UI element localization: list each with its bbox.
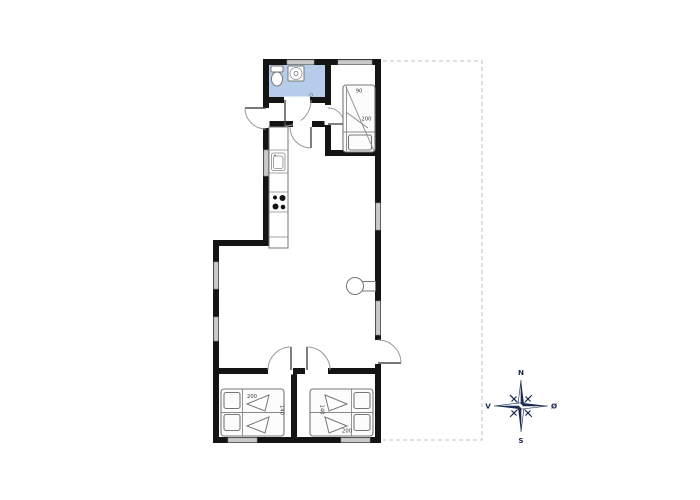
window-bathroom-north: [287, 60, 314, 65]
pillow: [354, 393, 370, 409]
kitchen-fixtures: [269, 127, 288, 248]
top-bedroom-door: [325, 105, 345, 125]
kitchen-counter: [269, 127, 288, 248]
washbasin-drain: [294, 72, 298, 76]
bed-right-bedroom: 140 200: [310, 389, 373, 436]
wall-bedrooms-north-c: [328, 368, 375, 374]
bed-top-bedroom: 90 200: [343, 85, 375, 152]
wood-stove-flue: [363, 282, 376, 292]
window-living-west-b: [214, 317, 219, 341]
bed-width-label: 140: [319, 405, 325, 415]
compass-west-label: V: [485, 402, 491, 411]
left-bedroom-door: [268, 347, 293, 375]
bed-width-label: 140: [279, 405, 285, 415]
wood-stove: [347, 278, 376, 295]
window-right-bedroom-south: [341, 438, 370, 443]
compass-center-dot: [519, 404, 522, 407]
bed-length-label: 200: [362, 117, 372, 123]
compass-east-label: Ø: [551, 402, 557, 411]
window-left-bedroom-south: [228, 438, 257, 443]
right-bedroom-door: [305, 347, 330, 375]
pillow: [354, 415, 370, 431]
wall-bedrooms-north-b: [293, 368, 305, 374]
window-living-west-a: [214, 262, 219, 289]
terrace-door-east: [375, 340, 402, 364]
window-living-east-a: [376, 203, 381, 230]
wall-bedrooms-divider: [291, 374, 297, 437]
compass-north-label: N: [518, 368, 524, 377]
hall-living-door: [290, 121, 312, 149]
bed-length-label: 200: [342, 429, 352, 435]
bed-width-label: 90: [356, 89, 363, 95]
window-living-east-b: [376, 301, 381, 335]
toilet-bowl: [272, 72, 283, 86]
wall-bathroom-bedroom-divider: [325, 65, 331, 105]
toilet-tank: [271, 66, 283, 72]
floorplan-canvas: 90 200 200 140 140 200: [0, 0, 700, 500]
wall-bathroom-south-a: [269, 97, 284, 103]
entrance-door-west: [245, 108, 270, 129]
bed-left-bedroom: 200 140: [221, 389, 285, 436]
wall-east: [375, 59, 381, 443]
pillow: [224, 393, 240, 409]
window-top-bedroom-north: [338, 60, 372, 65]
wall-bedrooms-north-a: [219, 368, 268, 374]
bed-length-label: 200: [247, 394, 257, 400]
wall-step: [213, 240, 269, 246]
pillow: [224, 415, 240, 431]
floorplan-page: 90 200 200 140 140 200: [0, 0, 700, 500]
compass-rose: N S V Ø: [485, 368, 557, 445]
window-kitchen-west: [264, 150, 269, 176]
compass-south-label: S: [518, 436, 523, 445]
property-boundary-dashed: [383, 61, 482, 440]
kitchen-tap: [274, 155, 276, 157]
wood-stove-body: [347, 278, 364, 295]
